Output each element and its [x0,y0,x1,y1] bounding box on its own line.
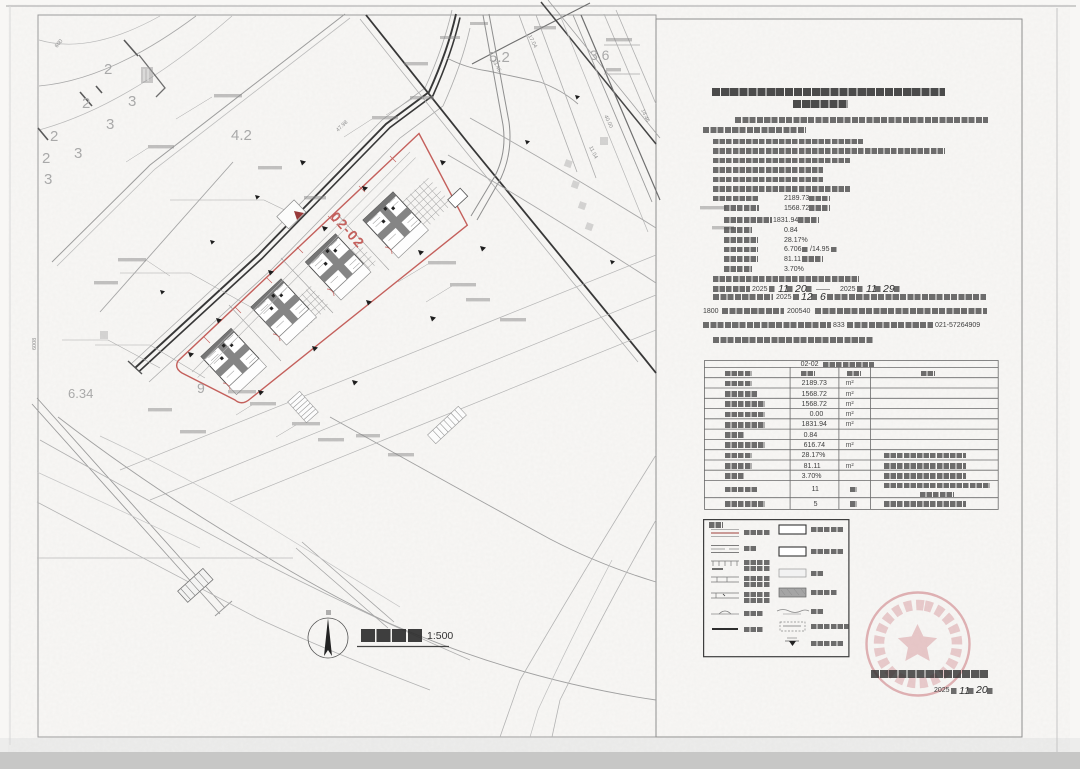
svg-text:6.34: 6.34 [68,386,93,401]
svg-text:4.2: 4.2 [231,127,252,144]
svg-text:3: 3 [44,171,52,188]
svg-text:3.6: 3.6 [590,47,610,63]
svg-text:9: 9 [197,380,205,396]
svg-text:3: 3 [128,93,136,110]
svg-text:2: 2 [104,61,112,78]
svg-text:3: 3 [106,116,114,133]
svg-text:2: 2 [50,128,58,145]
svg-text:2: 2 [42,150,50,167]
svg-text:2: 2 [82,95,90,112]
svg-text:3: 3 [74,145,82,162]
svg-text:6008: 6008 [32,338,38,350]
